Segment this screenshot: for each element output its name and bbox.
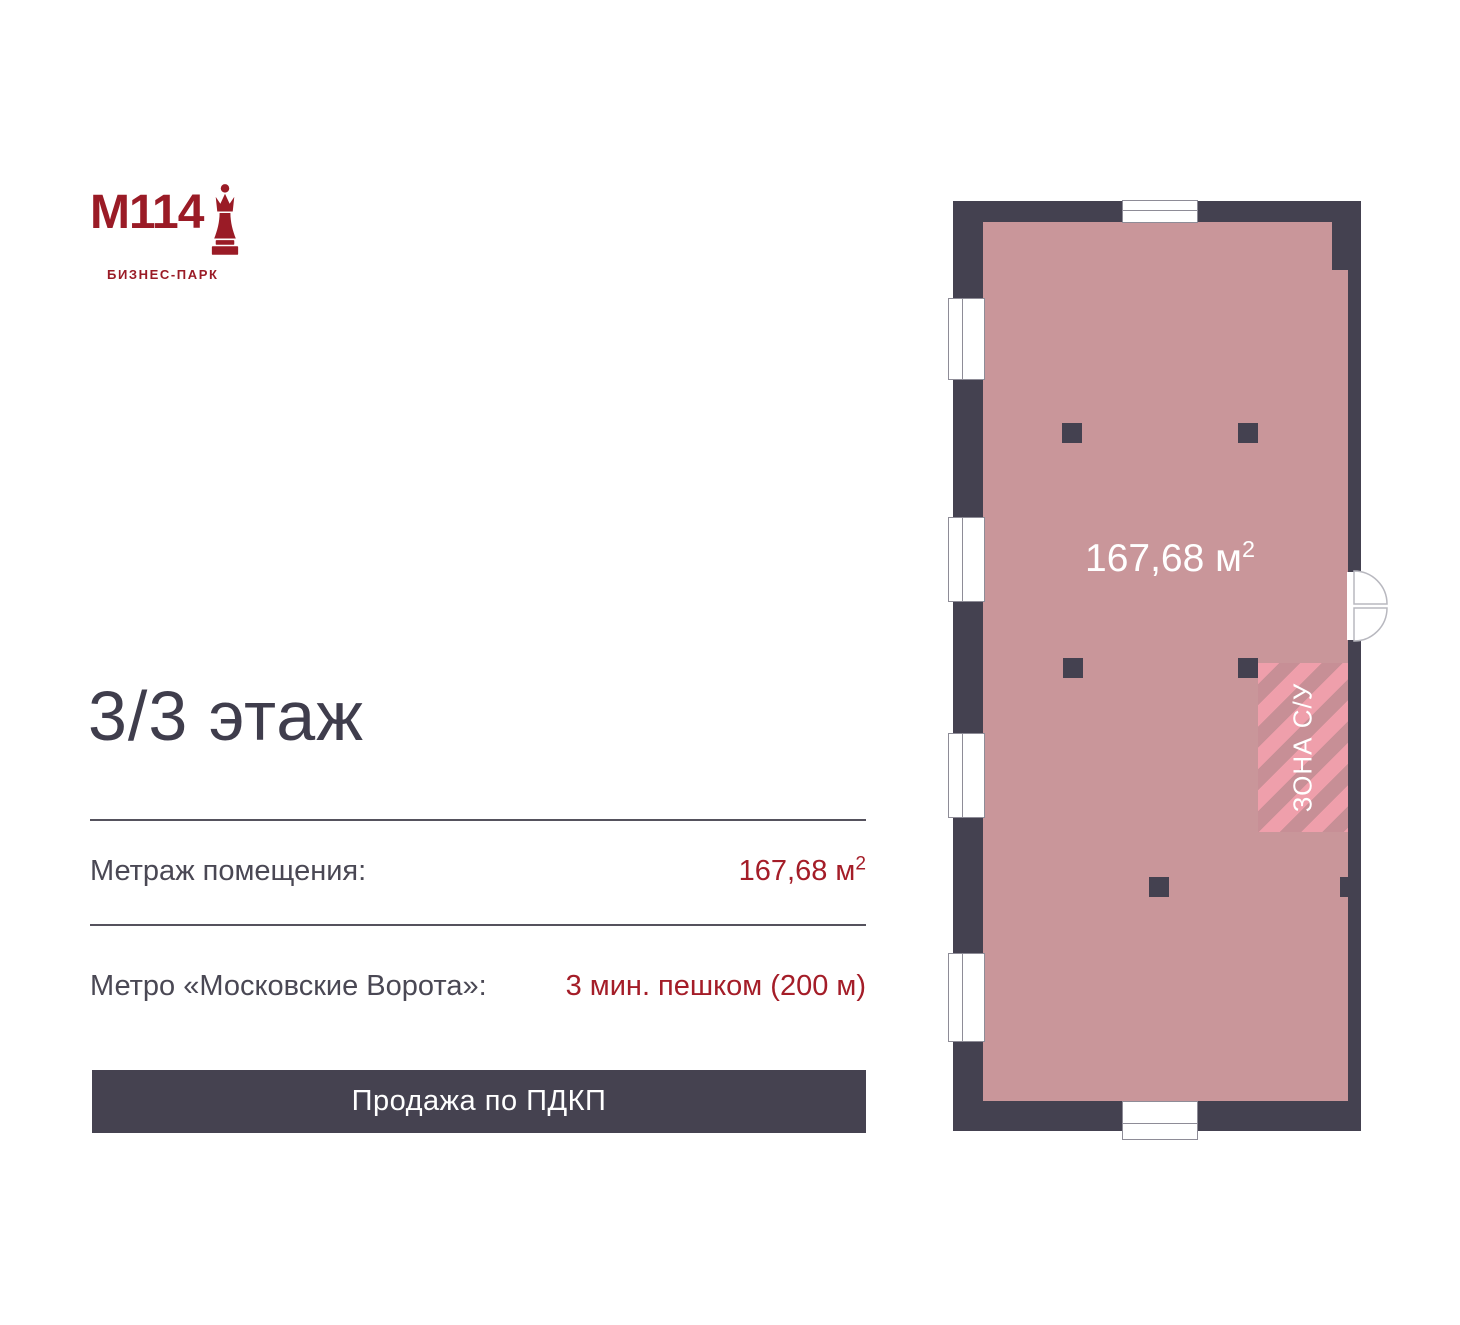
floor-plan: ЗОНА С/У 167,68 м2 bbox=[948, 196, 1408, 1146]
column-5 bbox=[1149, 877, 1169, 897]
wc-zone: ЗОНА С/У bbox=[1258, 663, 1348, 832]
window-pane-divider bbox=[962, 299, 963, 379]
divider-top bbox=[90, 819, 866, 821]
chess-queen-icon bbox=[208, 182, 242, 258]
logo-subtitle: БИЗНЕС-ПАРК bbox=[107, 267, 242, 282]
logo-row: M114 bbox=[90, 189, 242, 258]
door-leaf-top bbox=[1354, 571, 1387, 604]
window-left-4 bbox=[948, 953, 985, 1042]
detail-row-area: Метраж помещения: 167,68 м2 bbox=[90, 840, 866, 902]
sale-banner-label: Продажа по ПДКП bbox=[352, 1085, 607, 1118]
queen-crown bbox=[216, 194, 235, 212]
column-3 bbox=[1063, 658, 1083, 678]
column-2 bbox=[1238, 423, 1258, 443]
queen-base-bottom bbox=[212, 246, 238, 255]
metro-row-value: 3 мин. пешком (200 м) bbox=[566, 970, 866, 1003]
queen-base-top bbox=[216, 240, 235, 245]
window-pane-divider bbox=[962, 734, 963, 817]
area-row-value: 167,68 м2 bbox=[739, 855, 866, 888]
property-flyer: M114 БИЗНЕС-ПАРК 3/3 этаж Метраж помещен… bbox=[0, 0, 1460, 1325]
double-door-icon bbox=[1352, 570, 1396, 642]
window-bottom bbox=[1122, 1101, 1198, 1140]
window-pane-divider bbox=[962, 954, 963, 1041]
window-pane-divider bbox=[1123, 210, 1197, 211]
window-left-1 bbox=[948, 298, 985, 380]
queen-finial bbox=[221, 184, 230, 193]
wall-notch-top-right bbox=[1332, 222, 1348, 270]
room-area bbox=[983, 222, 1348, 1101]
room-area-label: 167,68 м2 bbox=[1020, 538, 1320, 580]
floor-title: 3/3 этаж bbox=[88, 676, 364, 756]
door-leaf-bottom bbox=[1354, 608, 1387, 641]
queen-body bbox=[215, 213, 237, 239]
area-row-label: Метраж помещения: bbox=[90, 855, 366, 888]
window-pane-divider bbox=[962, 518, 963, 601]
metro-row-label: Метро «Московские Ворота»: bbox=[90, 970, 487, 1003]
wc-zone-label: ЗОНА С/У bbox=[1288, 683, 1319, 813]
window-pane-divider bbox=[1123, 1123, 1197, 1124]
area-value-text: 167,68 м bbox=[739, 855, 856, 887]
wall-pilaster bbox=[1340, 877, 1349, 897]
window-top bbox=[1122, 200, 1198, 223]
logo-brand-text: M114 bbox=[90, 189, 203, 237]
divider-bottom bbox=[90, 924, 866, 926]
room-area-sup: 2 bbox=[1242, 536, 1255, 562]
detail-row-metro: Метро «Московские Ворота»: 3 мин. пешком… bbox=[90, 955, 866, 1017]
window-left-3 bbox=[948, 733, 985, 818]
room-area-value: 167,68 м bbox=[1085, 537, 1242, 580]
sale-banner: Продажа по ПДКП bbox=[92, 1070, 866, 1133]
window-left-2 bbox=[948, 517, 985, 602]
area-value-sup: 2 bbox=[855, 853, 866, 874]
column-4 bbox=[1238, 658, 1258, 678]
column-1 bbox=[1062, 423, 1082, 443]
logo: M114 БИЗНЕС-ПАРК bbox=[90, 189, 242, 282]
